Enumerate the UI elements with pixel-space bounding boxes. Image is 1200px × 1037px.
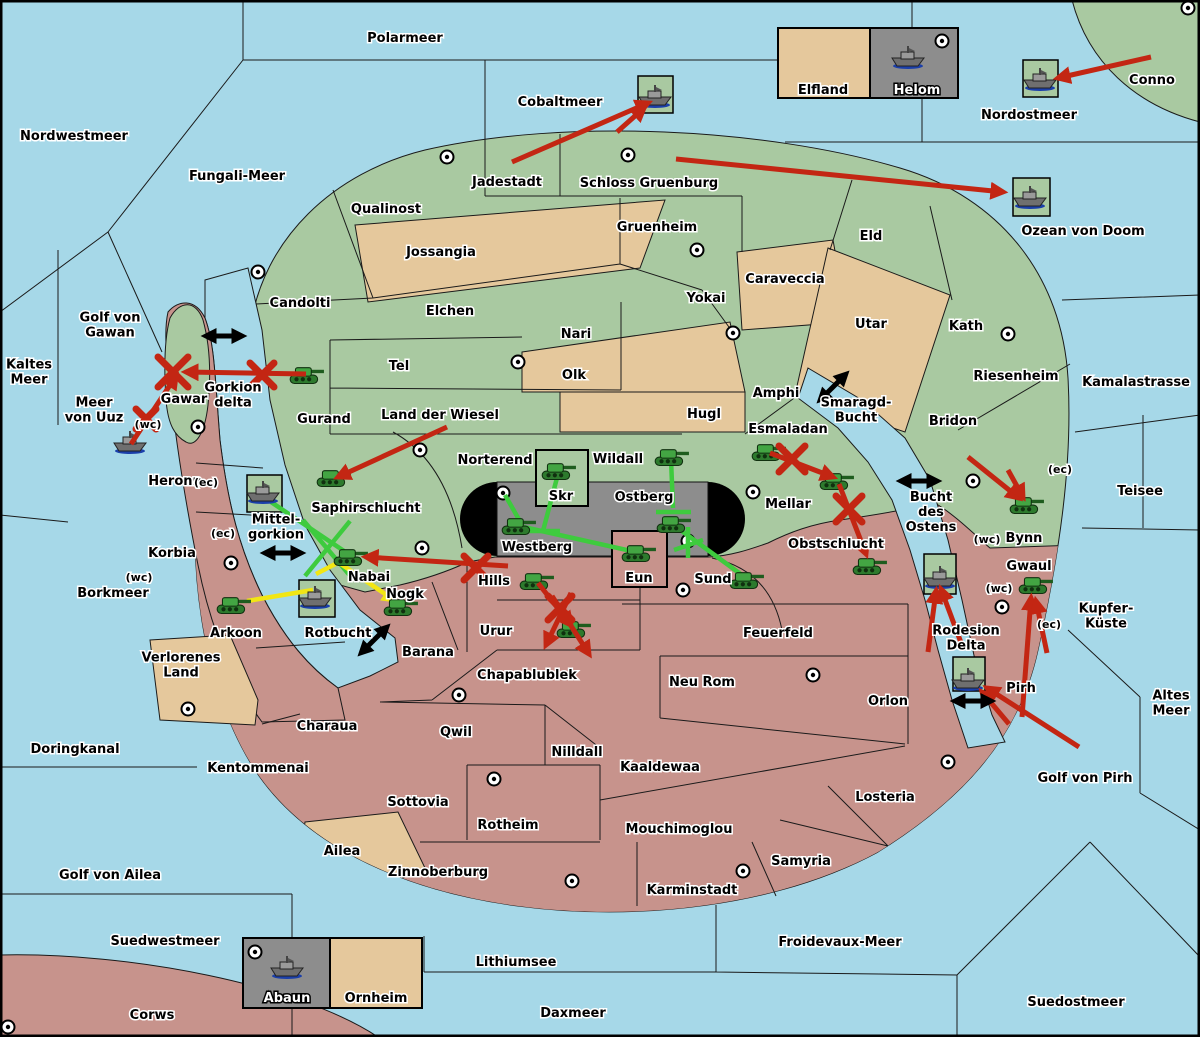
region-label--wc-: (wc) [986, 582, 1013, 595]
region-label-neu-rom: Neu Rom [669, 675, 735, 690]
supply-center-dot-core [695, 248, 699, 252]
region-label-gruenheim: Gruenheim [617, 220, 697, 235]
region-label-wildall: Wildall [593, 452, 643, 467]
region-label-nogk: Nogk [386, 587, 424, 602]
region-label-arkoon: Arkoon [210, 626, 262, 641]
region-label-nari: Nari [561, 327, 592, 342]
supply-center-dot-core [229, 561, 233, 565]
region-label-corws: Corws [130, 1008, 175, 1023]
sea-label-kamalastrasse: Kamalastrasse [1082, 375, 1190, 390]
region-label-charaua: Charaua [297, 719, 358, 734]
region-label-eld: Eld [860, 229, 883, 244]
sea-label-polarmeer: Polarmeer [367, 31, 443, 46]
supply-center-dot-core [681, 588, 685, 592]
supply-center-dot-core [751, 490, 755, 494]
region-label-jossangia: Jossangia [405, 245, 476, 260]
region-label--wc-: (wc) [974, 533, 1001, 546]
region-label-karminstadt: Karminstadt [647, 883, 738, 898]
sea-label-doringkanal: Doringkanal [30, 742, 119, 757]
region-label-ornheim: Ornheim [345, 991, 408, 1006]
sea-label-fungali-meer: Fungali-Meer [189, 169, 286, 184]
sea-label-froidevaux-meer: Froidevaux-Meer [778, 935, 902, 950]
region-label--ec-: (ec) [1037, 618, 1061, 631]
sea-label-nordwestmeer: Nordwestmeer [20, 129, 128, 144]
sea-label-ozean-von-doom: Ozean von Doom [1021, 224, 1144, 239]
region-label--wc-: (wc) [135, 418, 162, 431]
region-label-sund: Sund [694, 572, 731, 587]
supply-center-dot-core [971, 479, 975, 483]
region-label-kaaldewaa: Kaaldewaa [620, 760, 700, 775]
supply-center-dot-core [570, 879, 574, 883]
region-label-amphi: Amphi [753, 386, 800, 401]
region-label-ostberg: Ostberg [615, 490, 674, 505]
supply-center-dot-core [1186, 6, 1190, 10]
region-label-elchen: Elchen [426, 304, 474, 319]
supply-center-dot-core [445, 155, 449, 159]
sea-label-teisee: Teisee [1117, 484, 1163, 499]
region-label-mouchimoglou: Mouchimoglou [626, 822, 733, 837]
region-label-nabai: Nabai [348, 570, 390, 585]
sea-label-borkmeer: Borkmeer [77, 586, 149, 601]
supply-center-dot-core [626, 153, 630, 157]
sea-label-cobaltmeer: Cobaltmeer [518, 95, 603, 110]
supply-center-dot-core [940, 39, 944, 43]
sea-label-golf-von-ailea: Golf von Ailea [59, 868, 161, 883]
region-label-gwaul: Gwaul [1006, 559, 1051, 574]
supply-center-dot-core [6, 1025, 10, 1029]
region-label-skr: Skr [549, 489, 574, 504]
sea-label-kupfer-k-ste: Kupfer-Küste [1079, 602, 1134, 632]
supply-center-dot-core [946, 760, 950, 764]
region-label-gawar: Gawar [161, 392, 208, 407]
region-label-urur: Urur [480, 624, 513, 639]
sea-label-rotbucht: Rotbucht [305, 626, 372, 641]
sea-label-mittel-gorkion: Mittel-gorkion [248, 513, 304, 543]
region-label-obstschlucht: Obstschlucht [788, 537, 884, 552]
region-label-saphirschlucht: Saphirschlucht [311, 501, 420, 516]
supply-center-dot-core [420, 546, 424, 550]
sea-label-lithiumsee: Lithiumsee [476, 955, 557, 970]
supply-center-dot-core [186, 707, 190, 711]
region-label-orlon: Orlon [868, 694, 908, 709]
region-label-kentommenai: Kentommenai [207, 761, 308, 776]
region-label-conno: Conno [1129, 73, 1175, 88]
region-label-rotheim: Rotheim [477, 818, 538, 833]
region-label-candolti: Candolti [270, 296, 331, 311]
region-label-utar: Utar [855, 317, 888, 332]
supply-center-dot-core [1006, 332, 1010, 336]
supply-center-dot-core [811, 673, 815, 677]
region-label-olk: Olk [562, 368, 587, 383]
region-label--ec-: (ec) [1048, 463, 1072, 476]
region-label-korbia: Korbia [148, 546, 196, 561]
sea-label-daxmeer: Daxmeer [540, 1006, 606, 1021]
region-label-bridon: Bridon [929, 414, 977, 429]
supply-center-dot-core [418, 448, 422, 452]
region-label-nilldall: Nilldall [551, 745, 602, 760]
supply-center-dot-core [253, 950, 257, 954]
region-label-qualinost: Qualinost [351, 202, 421, 217]
region-label-samyria: Samyria [771, 854, 831, 869]
region-label-hugl: Hugl [687, 407, 721, 422]
region-label-gurand: Gurand [297, 412, 351, 427]
region-label-mellar: Mellar [765, 497, 811, 512]
supply-center-dot-core [196, 425, 200, 429]
region-label-westberg: Westberg [502, 540, 572, 555]
region-label-jadestadt: Jadestadt [471, 175, 542, 190]
sea-label-suedostmeer: Suedostmeer [1027, 995, 1125, 1010]
region-label-riesenheim: Riesenheim [973, 369, 1058, 384]
region-label-helom: Helom [894, 83, 941, 98]
sea-label-suedwestmeer: Suedwestmeer [110, 934, 220, 949]
supply-center-dot-core [256, 270, 260, 274]
supply-center-dot-core [492, 777, 496, 781]
sea-label-altes-meer: AltesMeer [1152, 689, 1190, 719]
region-label-schloss-gruenburg: Schloss Gruenburg [580, 176, 718, 191]
region-label-qwil: Qwil [440, 725, 472, 740]
sea-label-nordostmeer: Nordostmeer [981, 108, 1078, 123]
sea-label-kaltes-meer: KaltesMeer [6, 358, 52, 388]
region-label-pirh: Pirh [1006, 681, 1036, 696]
region-label-land-der-wiesel: Land der Wiesel [381, 408, 499, 423]
region-label-abaun: Abaun [264, 991, 311, 1006]
sea-label-golf-von-gawan: Golf vonGawan [80, 311, 141, 341]
region-label-yokai: Yokai [685, 291, 725, 306]
game-map: PolarmeerNordwestmeerFungali-MeerCobaltm… [0, 0, 1200, 1037]
supply-center-dot-core [501, 491, 505, 495]
region-label-chapablublek: Chapablublek [477, 668, 577, 683]
region-label-feuerfeld: Feuerfeld [743, 626, 813, 641]
region-label-losteria: Losteria [855, 790, 915, 805]
region-label-ailea: Ailea [324, 844, 361, 859]
map-canvas: PolarmeerNordwestmeerFungali-MeerCobaltm… [0, 0, 1200, 1037]
region-label-elfland: Elfland [798, 83, 848, 98]
sea-label-golf-von-pirh: Golf von Pirh [1037, 771, 1132, 786]
region-label-hills: Hills [478, 574, 510, 589]
supply-center-dot-core [731, 331, 735, 335]
region-label-zinnoberburg: Zinnoberburg [388, 865, 488, 880]
region-label-kath: Kath [949, 319, 983, 334]
supply-center-dot-core [516, 360, 520, 364]
region-label--ec-: (ec) [211, 527, 235, 540]
region-label-caraveccia: Caraveccia [745, 272, 824, 287]
region-label--ec-: (ec) [194, 476, 218, 489]
region-label--wc-: (wc) [126, 571, 153, 584]
supply-center-dot-core [1000, 605, 1004, 609]
attack-arrow-red [186, 372, 306, 374]
region-label-bynn: Bynn [1006, 531, 1043, 546]
region-label-barana: Barana [402, 645, 454, 660]
region-label-tel: Tel [389, 359, 409, 374]
supply-center-dot-core [741, 869, 745, 873]
region-label-esmaladan: Esmaladan [748, 422, 828, 437]
supply-center-dot-core [457, 693, 461, 697]
region-label-norterend: Norterend [457, 453, 532, 468]
region-label-eun: Eun [625, 571, 652, 586]
region-label-sottovia: Sottovia [387, 795, 448, 810]
